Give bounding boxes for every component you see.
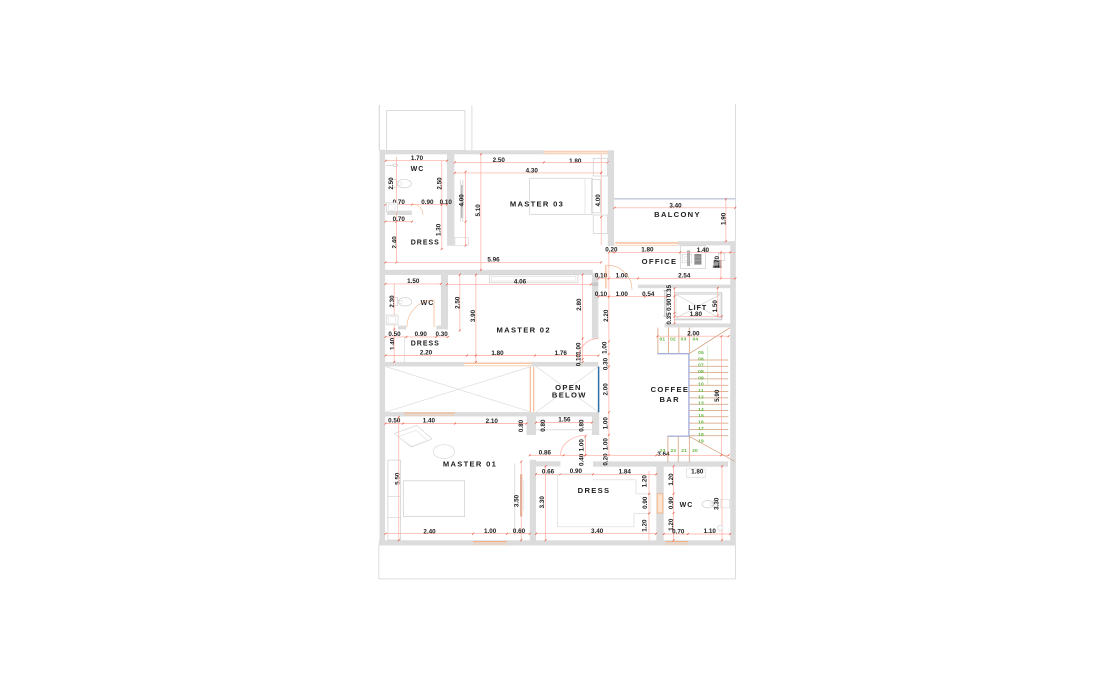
svg-text:3.30: 3.30 bbox=[539, 496, 546, 509]
svg-text:BAR: BAR bbox=[660, 395, 680, 404]
svg-text:1.00: 1.00 bbox=[484, 528, 497, 535]
svg-text:1.00: 1.00 bbox=[602, 341, 609, 354]
svg-text:3.50: 3.50 bbox=[513, 494, 520, 507]
svg-text:1.40: 1.40 bbox=[390, 337, 397, 350]
svg-text:07: 07 bbox=[698, 363, 704, 369]
svg-text:1.90: 1.90 bbox=[721, 212, 728, 225]
svg-text:2.40: 2.40 bbox=[423, 528, 436, 535]
svg-text:0.35: 0.35 bbox=[666, 312, 673, 325]
svg-text:0.80: 0.80 bbox=[579, 419, 586, 432]
svg-text:0.35: 0.35 bbox=[666, 284, 673, 297]
svg-text:2.00: 2.00 bbox=[687, 331, 700, 338]
svg-text:4.00: 4.00 bbox=[595, 194, 602, 207]
svg-text:DRESS: DRESS bbox=[411, 240, 440, 247]
svg-text:1.20: 1.20 bbox=[642, 475, 649, 488]
svg-text:MASTER 01: MASTER 01 bbox=[443, 460, 497, 469]
svg-text:23: 23 bbox=[660, 448, 666, 454]
svg-text:05: 05 bbox=[698, 350, 704, 356]
svg-text:10: 10 bbox=[698, 382, 704, 388]
svg-text:20: 20 bbox=[692, 448, 698, 454]
svg-text:3.30: 3.30 bbox=[714, 497, 721, 510]
svg-text:14: 14 bbox=[698, 407, 704, 413]
svg-text:4.00: 4.00 bbox=[459, 194, 466, 207]
svg-text:16: 16 bbox=[698, 420, 704, 426]
svg-text:0.20: 0.20 bbox=[603, 453, 610, 466]
svg-text:5.50: 5.50 bbox=[394, 472, 401, 485]
svg-text:WC: WC bbox=[411, 166, 425, 173]
svg-text:1.70: 1.70 bbox=[411, 155, 424, 162]
svg-text:22: 22 bbox=[670, 448, 676, 454]
svg-text:1.00: 1.00 bbox=[576, 342, 583, 355]
svg-text:1.80: 1.80 bbox=[569, 158, 582, 165]
svg-text:11: 11 bbox=[698, 388, 704, 394]
svg-text:21: 21 bbox=[681, 448, 687, 454]
svg-text:0.90: 0.90 bbox=[642, 496, 649, 509]
svg-text:2.50: 2.50 bbox=[436, 177, 443, 190]
svg-text:12: 12 bbox=[698, 394, 704, 400]
svg-text:DRESS: DRESS bbox=[578, 486, 611, 495]
svg-text:18: 18 bbox=[698, 432, 704, 438]
svg-text:OFFICE: OFFICE bbox=[642, 257, 678, 266]
svg-text:08: 08 bbox=[698, 369, 704, 375]
svg-text:1.40: 1.40 bbox=[697, 247, 710, 254]
svg-text:09: 09 bbox=[698, 375, 704, 381]
svg-text:2.50: 2.50 bbox=[454, 296, 461, 309]
svg-text:01: 01 bbox=[659, 337, 665, 343]
svg-text:1.76: 1.76 bbox=[555, 350, 568, 357]
svg-text:1.00: 1.00 bbox=[602, 417, 609, 430]
svg-text:1.70: 1.70 bbox=[714, 255, 721, 268]
svg-text:BELOW: BELOW bbox=[552, 391, 587, 400]
svg-text:2.50: 2.50 bbox=[493, 157, 506, 164]
svg-text:1.20: 1.20 bbox=[642, 519, 649, 532]
svg-text:DRESS: DRESS bbox=[411, 340, 440, 347]
svg-text:03: 03 bbox=[681, 337, 687, 343]
svg-text:1.84: 1.84 bbox=[619, 469, 632, 476]
svg-text:13: 13 bbox=[698, 401, 704, 407]
svg-text:BALCONY: BALCONY bbox=[654, 210, 701, 219]
svg-text:0.90: 0.90 bbox=[666, 298, 673, 311]
svg-text:1.80: 1.80 bbox=[691, 469, 704, 476]
svg-text:WC: WC bbox=[680, 502, 694, 509]
svg-text:3.40: 3.40 bbox=[669, 203, 682, 210]
svg-text:0.70: 0.70 bbox=[393, 216, 406, 223]
svg-text:0.70: 0.70 bbox=[672, 529, 685, 536]
svg-text:COFFEE: COFFEE bbox=[651, 385, 690, 394]
svg-text:04: 04 bbox=[692, 337, 698, 343]
svg-text:02: 02 bbox=[670, 337, 676, 343]
svg-text:2.40: 2.40 bbox=[392, 236, 399, 249]
svg-text:0.80: 0.80 bbox=[518, 419, 525, 432]
svg-text:3.40: 3.40 bbox=[591, 528, 604, 535]
svg-text:0.90: 0.90 bbox=[421, 199, 434, 206]
svg-text:4.30: 4.30 bbox=[526, 167, 539, 174]
svg-text:2.50: 2.50 bbox=[388, 177, 395, 190]
svg-text:17: 17 bbox=[698, 426, 704, 432]
svg-text:2.30: 2.30 bbox=[389, 295, 396, 308]
svg-text:5.90: 5.90 bbox=[714, 389, 721, 402]
svg-text:1.80: 1.80 bbox=[491, 350, 504, 357]
svg-text:1.80: 1.80 bbox=[690, 311, 703, 318]
svg-text:2.80: 2.80 bbox=[576, 298, 583, 311]
svg-text:06: 06 bbox=[698, 356, 704, 362]
svg-text:15: 15 bbox=[698, 413, 704, 419]
svg-text:MASTER 02: MASTER 02 bbox=[497, 326, 551, 335]
svg-text:MASTER 03: MASTER 03 bbox=[510, 200, 564, 209]
svg-text:1.00: 1.00 bbox=[602, 438, 609, 451]
svg-text:1.00: 1.00 bbox=[579, 439, 586, 452]
svg-text:0.80: 0.80 bbox=[540, 419, 547, 432]
